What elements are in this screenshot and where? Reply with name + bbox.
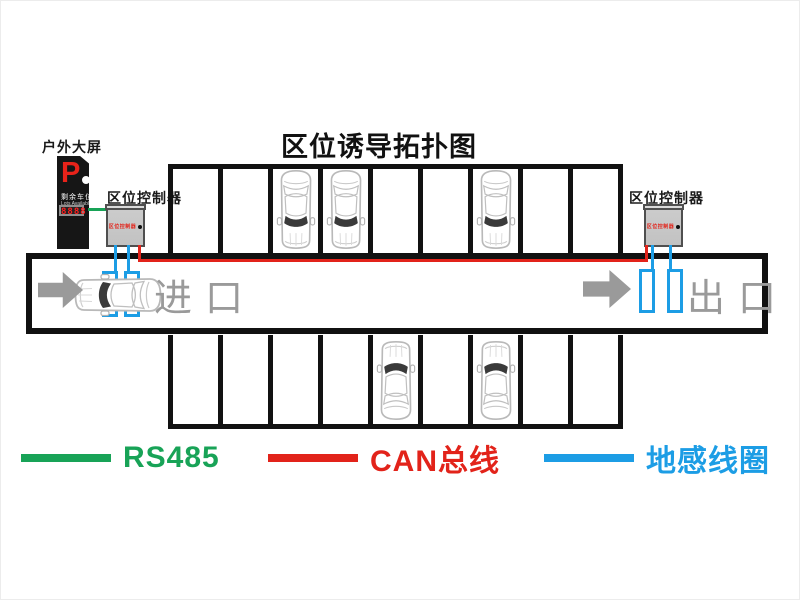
stall-divider <box>368 335 373 429</box>
stall-divider <box>268 164 273 254</box>
controller-lid <box>643 204 684 210</box>
stall-divider <box>218 335 223 429</box>
right-controller-box: 区位控制器 <box>644 206 683 247</box>
parking-wall <box>168 424 623 429</box>
left-controller-box: 区位控制器 <box>106 206 145 247</box>
legend-line-swatch <box>544 454 634 462</box>
legend-label: RS485 <box>123 441 220 475</box>
exit-label: 出口 <box>687 267 789 322</box>
stall-divider <box>218 164 223 254</box>
entrance-label: 进口 <box>154 267 256 322</box>
stall-divider <box>518 164 523 254</box>
stall-divider <box>618 164 623 254</box>
diagram-title: 区位诱导拓扑图 <box>281 125 477 164</box>
controller-panel-text: 区位控制器 <box>647 225 675 230</box>
controller-knob-icon <box>676 225 680 229</box>
stall-divider <box>418 335 423 429</box>
legend-label: CAN总线 <box>370 436 500 480</box>
controller-panel-text: 区位控制器 <box>109 225 137 230</box>
legend-item-ground-loop: 地感线圈 <box>544 441 770 475</box>
outdoor-display-sign: P 剩余车位 Lots Available 8888 <box>57 156 89 249</box>
stall-divider <box>618 335 623 429</box>
can-bus-wire-run <box>138 259 648 262</box>
stall-divider <box>268 335 273 429</box>
parked-car <box>276 167 316 252</box>
lane-left-wall <box>26 253 32 334</box>
can-bus-wire-right-drop <box>645 245 648 262</box>
loop-feed-wire <box>114 245 117 273</box>
outdoor-display-label: 户外大屏 <box>42 137 102 157</box>
stall-divider <box>568 335 573 429</box>
legend-line-swatch <box>268 454 358 462</box>
parked-car <box>376 338 416 423</box>
loop-feed-wire <box>651 245 654 271</box>
parking-wall <box>168 164 623 169</box>
stall-divider <box>418 164 423 254</box>
stall-divider <box>568 164 573 254</box>
sign-dot-icon <box>82 176 90 184</box>
legend-label: 地感线圈 <box>646 436 770 480</box>
loop-feed-wire <box>669 245 672 271</box>
p-letter: P <box>61 159 80 187</box>
parked-car <box>326 167 366 252</box>
loop-feed-wire <box>127 245 130 273</box>
stall-divider <box>468 164 473 254</box>
controller-knob-icon <box>138 225 142 229</box>
legend-line-swatch <box>21 454 111 462</box>
parking-p-symbol: P <box>61 159 90 187</box>
controller-lid <box>105 204 146 210</box>
stall-divider <box>318 335 323 429</box>
stall-divider <box>168 164 173 254</box>
stall-divider <box>518 335 523 429</box>
legend-item-can-bus: CAN总线 <box>268 441 500 475</box>
ground-loop <box>667 269 683 313</box>
exit-arrow-icon <box>583 270 631 308</box>
stall-divider <box>368 164 373 254</box>
top-parking-row <box>168 164 623 254</box>
led-count-display: 8888 <box>59 205 84 216</box>
parking-guidance-diagram: 区位诱导拓扑图 户外大屏 P 剩余车位 Lots Available 8888 … <box>0 0 800 600</box>
parked-car <box>476 167 516 252</box>
entering-car <box>73 271 163 317</box>
legend-item-rs485: RS485 <box>21 441 220 475</box>
lane-bottom-wall <box>26 328 768 334</box>
bottom-parking-row <box>168 335 623 429</box>
stall-divider <box>468 335 473 429</box>
stall-divider <box>168 335 173 429</box>
stall-divider <box>318 164 323 254</box>
parked-car <box>476 338 516 423</box>
ground-loop <box>639 269 655 313</box>
